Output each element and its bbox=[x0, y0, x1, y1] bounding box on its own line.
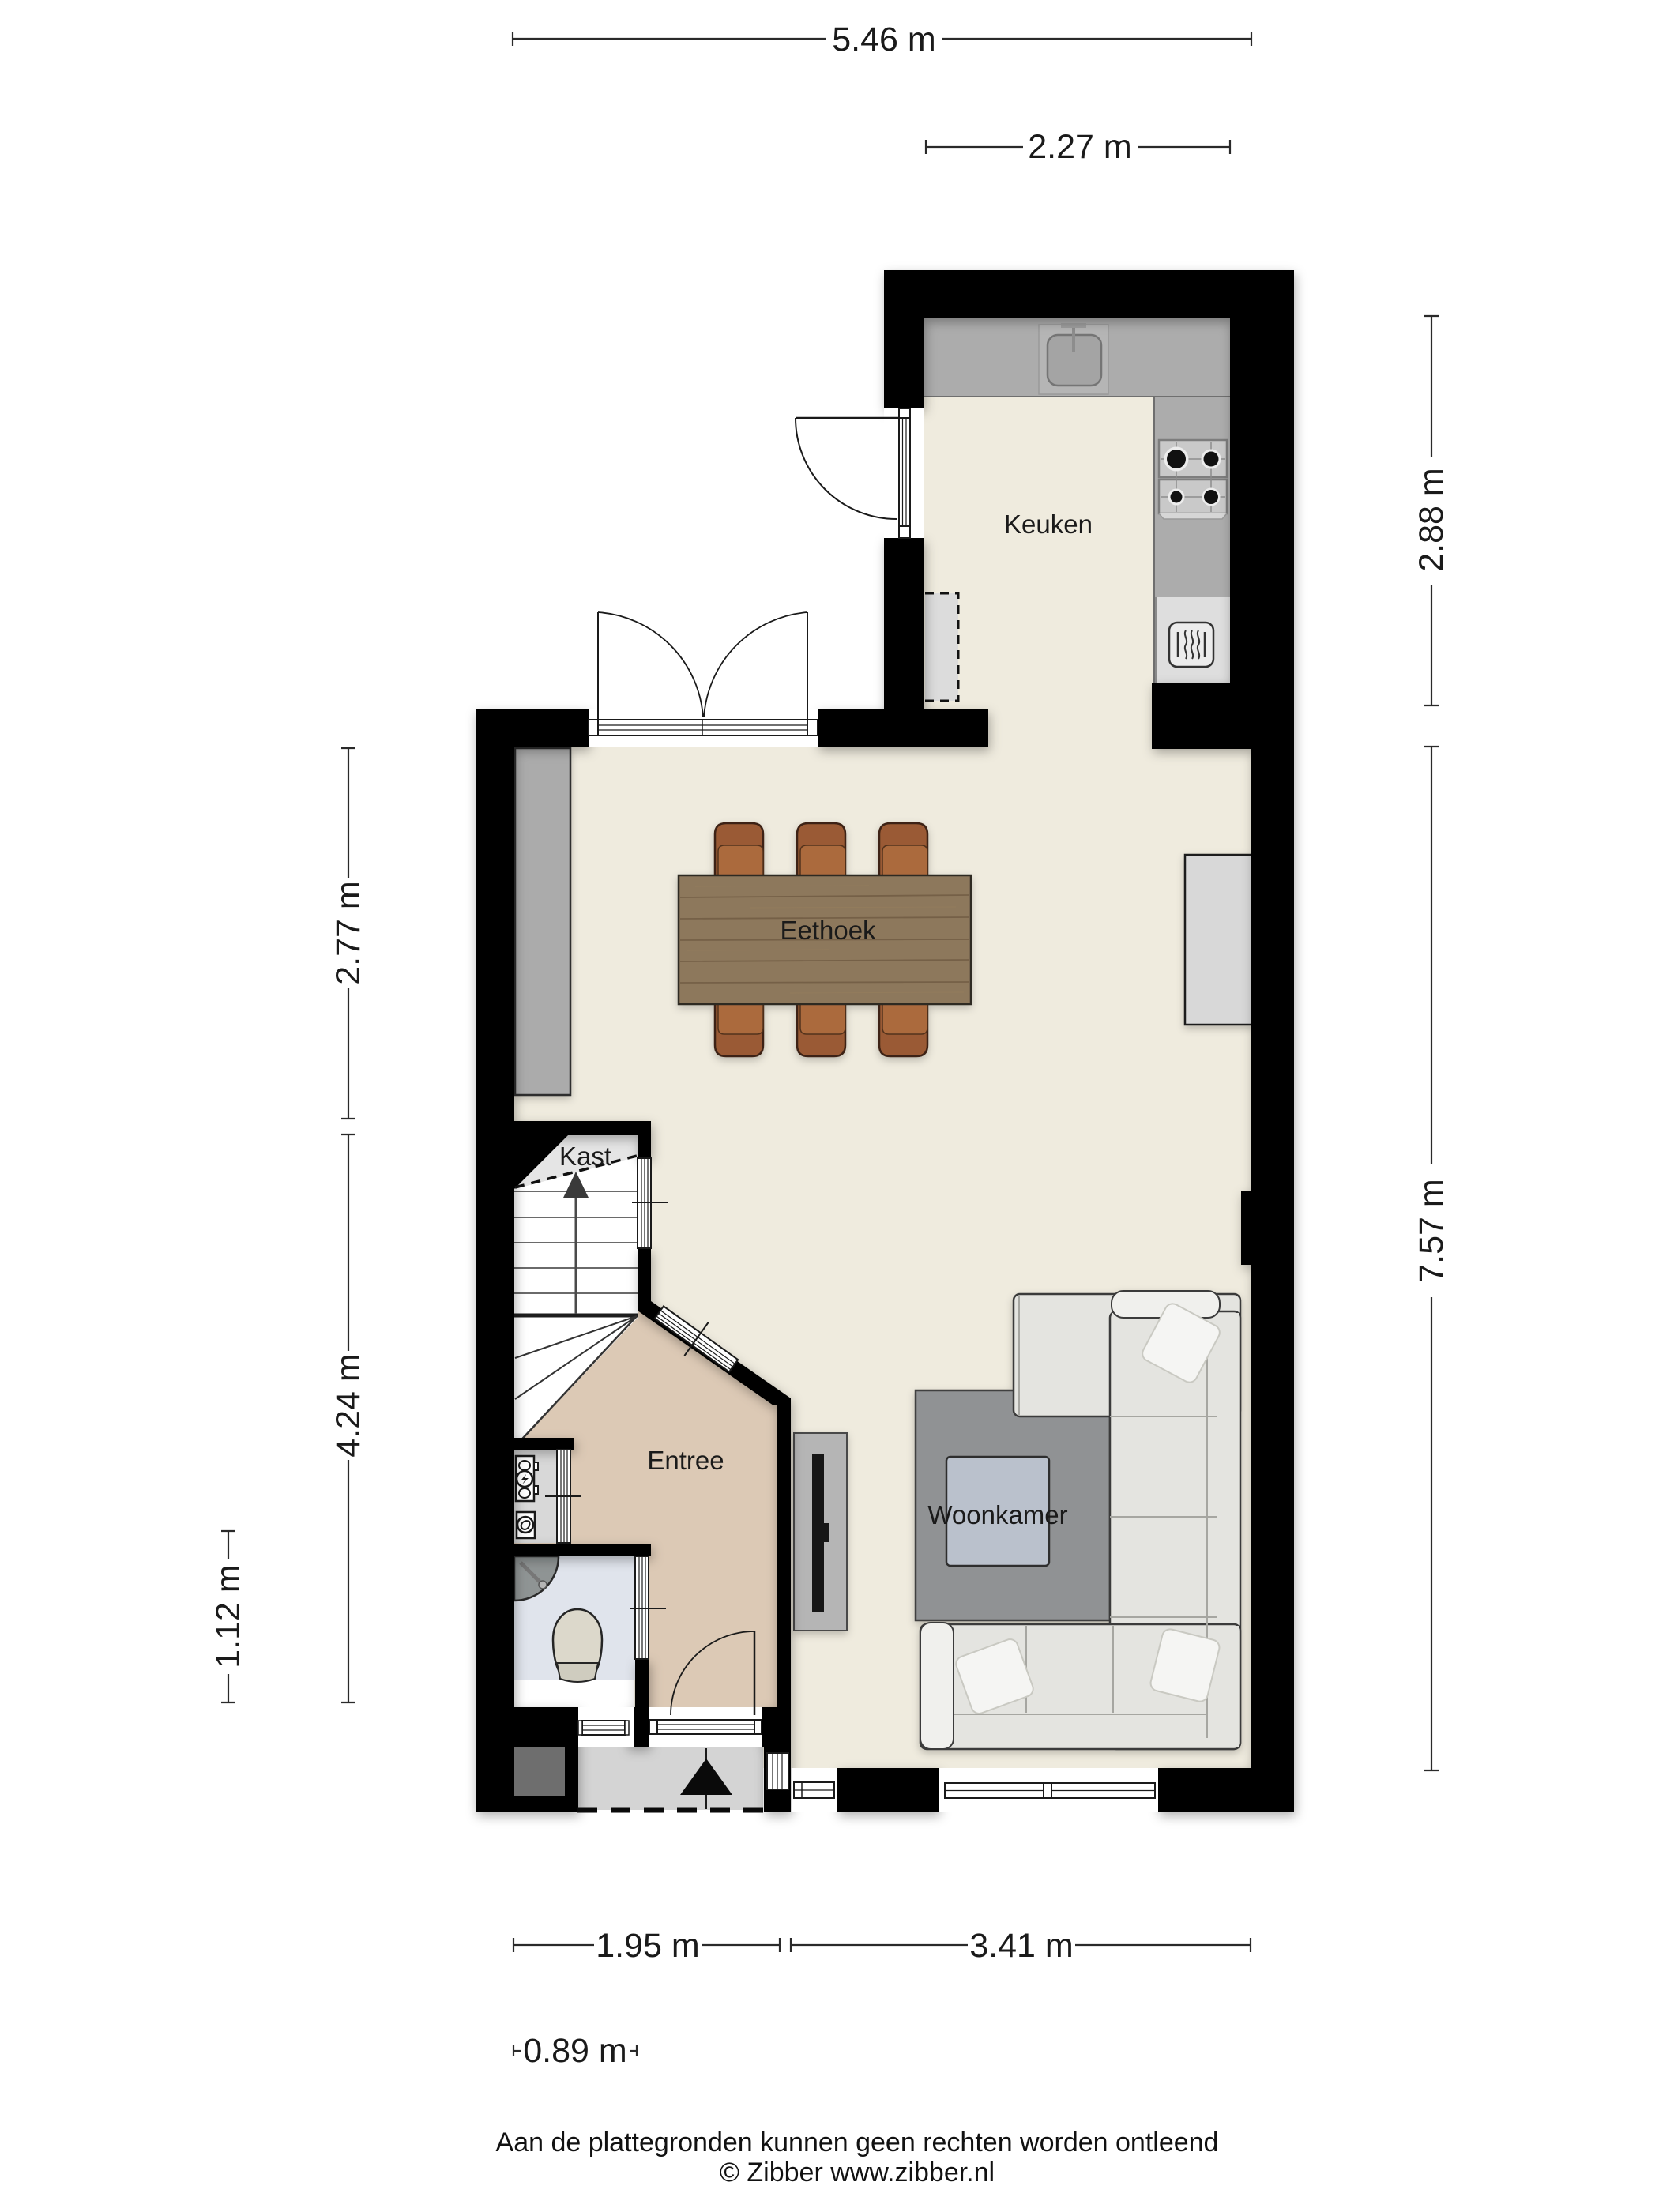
svg-text:© Zibber www.zibber.nl: © Zibber www.zibber.nl bbox=[720, 2157, 995, 2188]
svg-text:Kast: Kast bbox=[559, 1142, 611, 1171]
svg-text:2.27 m: 2.27 m bbox=[1028, 128, 1131, 166]
svg-text:2.88 m: 2.88 m bbox=[1413, 468, 1450, 571]
svg-text:Entree: Entree bbox=[647, 1446, 724, 1475]
svg-text:2.77 m: 2.77 m bbox=[329, 881, 367, 984]
svg-text:Eethoek: Eethoek bbox=[780, 916, 876, 945]
svg-text:0.89 m: 0.89 m bbox=[523, 2032, 626, 2070]
svg-text:Aan de plattegronden kunnen ge: Aan de plattegronden kunnen geen rechten… bbox=[496, 2127, 1219, 2157]
svg-text:Woonkamer: Woonkamer bbox=[927, 1500, 1067, 1529]
svg-text:5.46 m: 5.46 m bbox=[832, 21, 935, 58]
svg-text:7.57 m: 7.57 m bbox=[1413, 1179, 1450, 1282]
svg-text:4.24 m: 4.24 m bbox=[329, 1353, 367, 1457]
svg-text:1.95 m: 1.95 m bbox=[596, 1927, 699, 1965]
svg-text:Keuken: Keuken bbox=[1004, 510, 1093, 539]
svg-text:1.12 m: 1.12 m bbox=[209, 1564, 247, 1668]
svg-text:3.41 m: 3.41 m bbox=[969, 1927, 1073, 1965]
